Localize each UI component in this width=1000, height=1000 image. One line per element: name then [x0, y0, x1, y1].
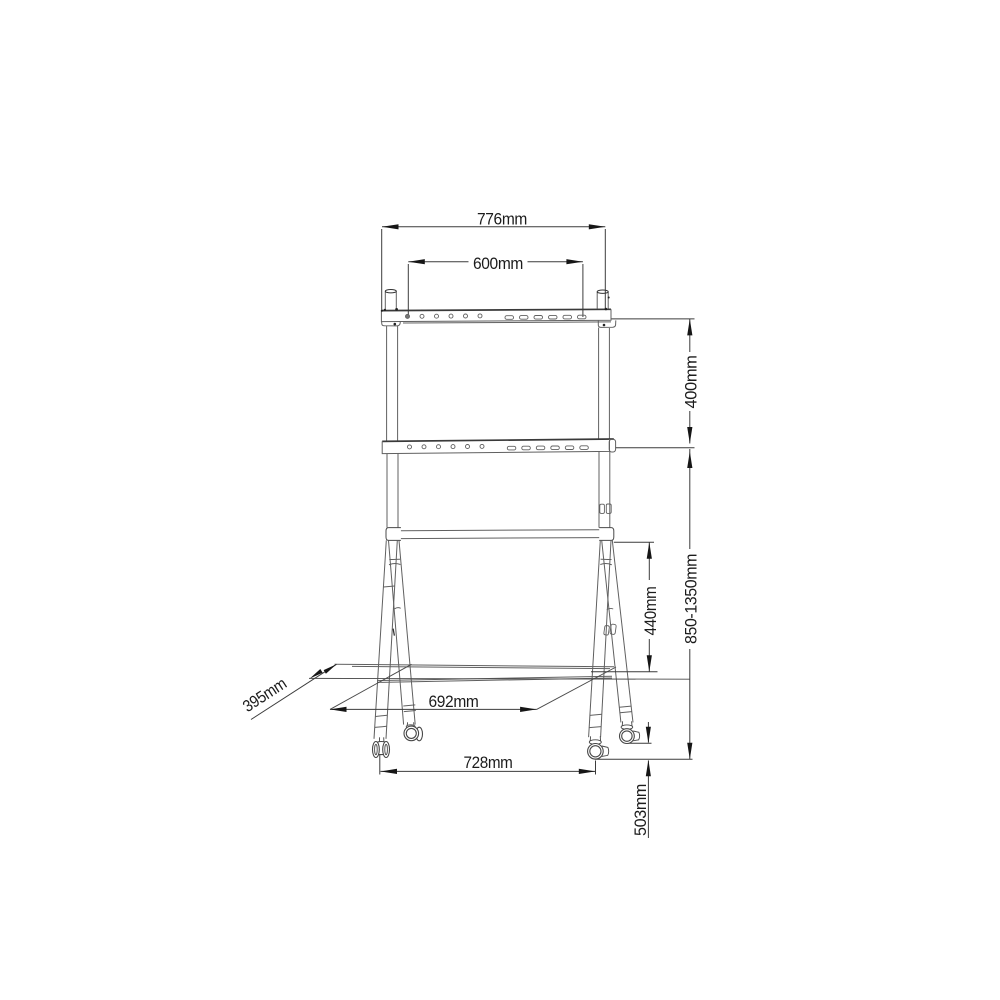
svg-text:776mm: 776mm	[477, 210, 527, 229]
svg-text:400mm: 400mm	[682, 355, 701, 408]
svg-text:503mm: 503mm	[631, 784, 650, 836]
svg-text:850-1350mm: 850-1350mm	[681, 554, 700, 644]
svg-text:600mm: 600mm	[473, 254, 523, 273]
svg-text:692mm: 692mm	[429, 692, 479, 711]
svg-text:440mm: 440mm	[641, 586, 660, 635]
svg-text:728mm: 728mm	[464, 753, 513, 772]
